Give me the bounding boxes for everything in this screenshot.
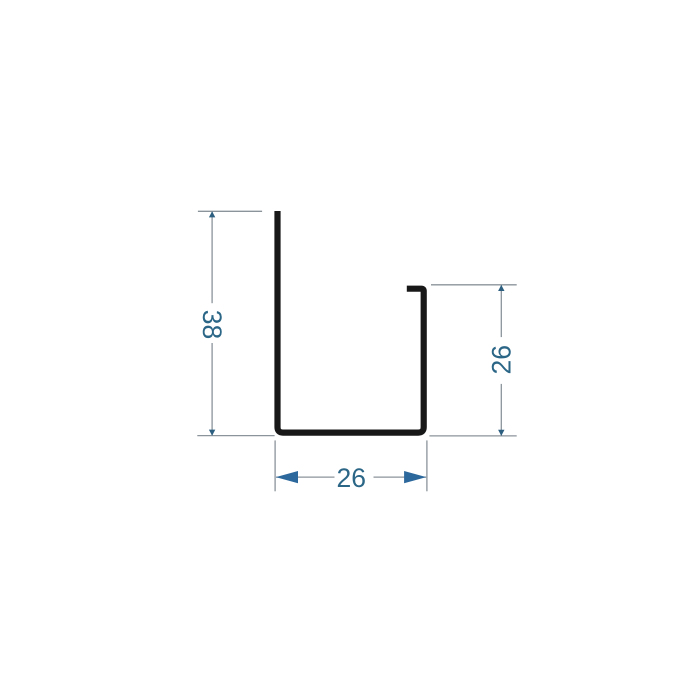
svg-text:26: 26 [486, 345, 516, 374]
svg-text:38: 38 [197, 310, 227, 339]
svg-text:26: 26 [337, 463, 366, 493]
